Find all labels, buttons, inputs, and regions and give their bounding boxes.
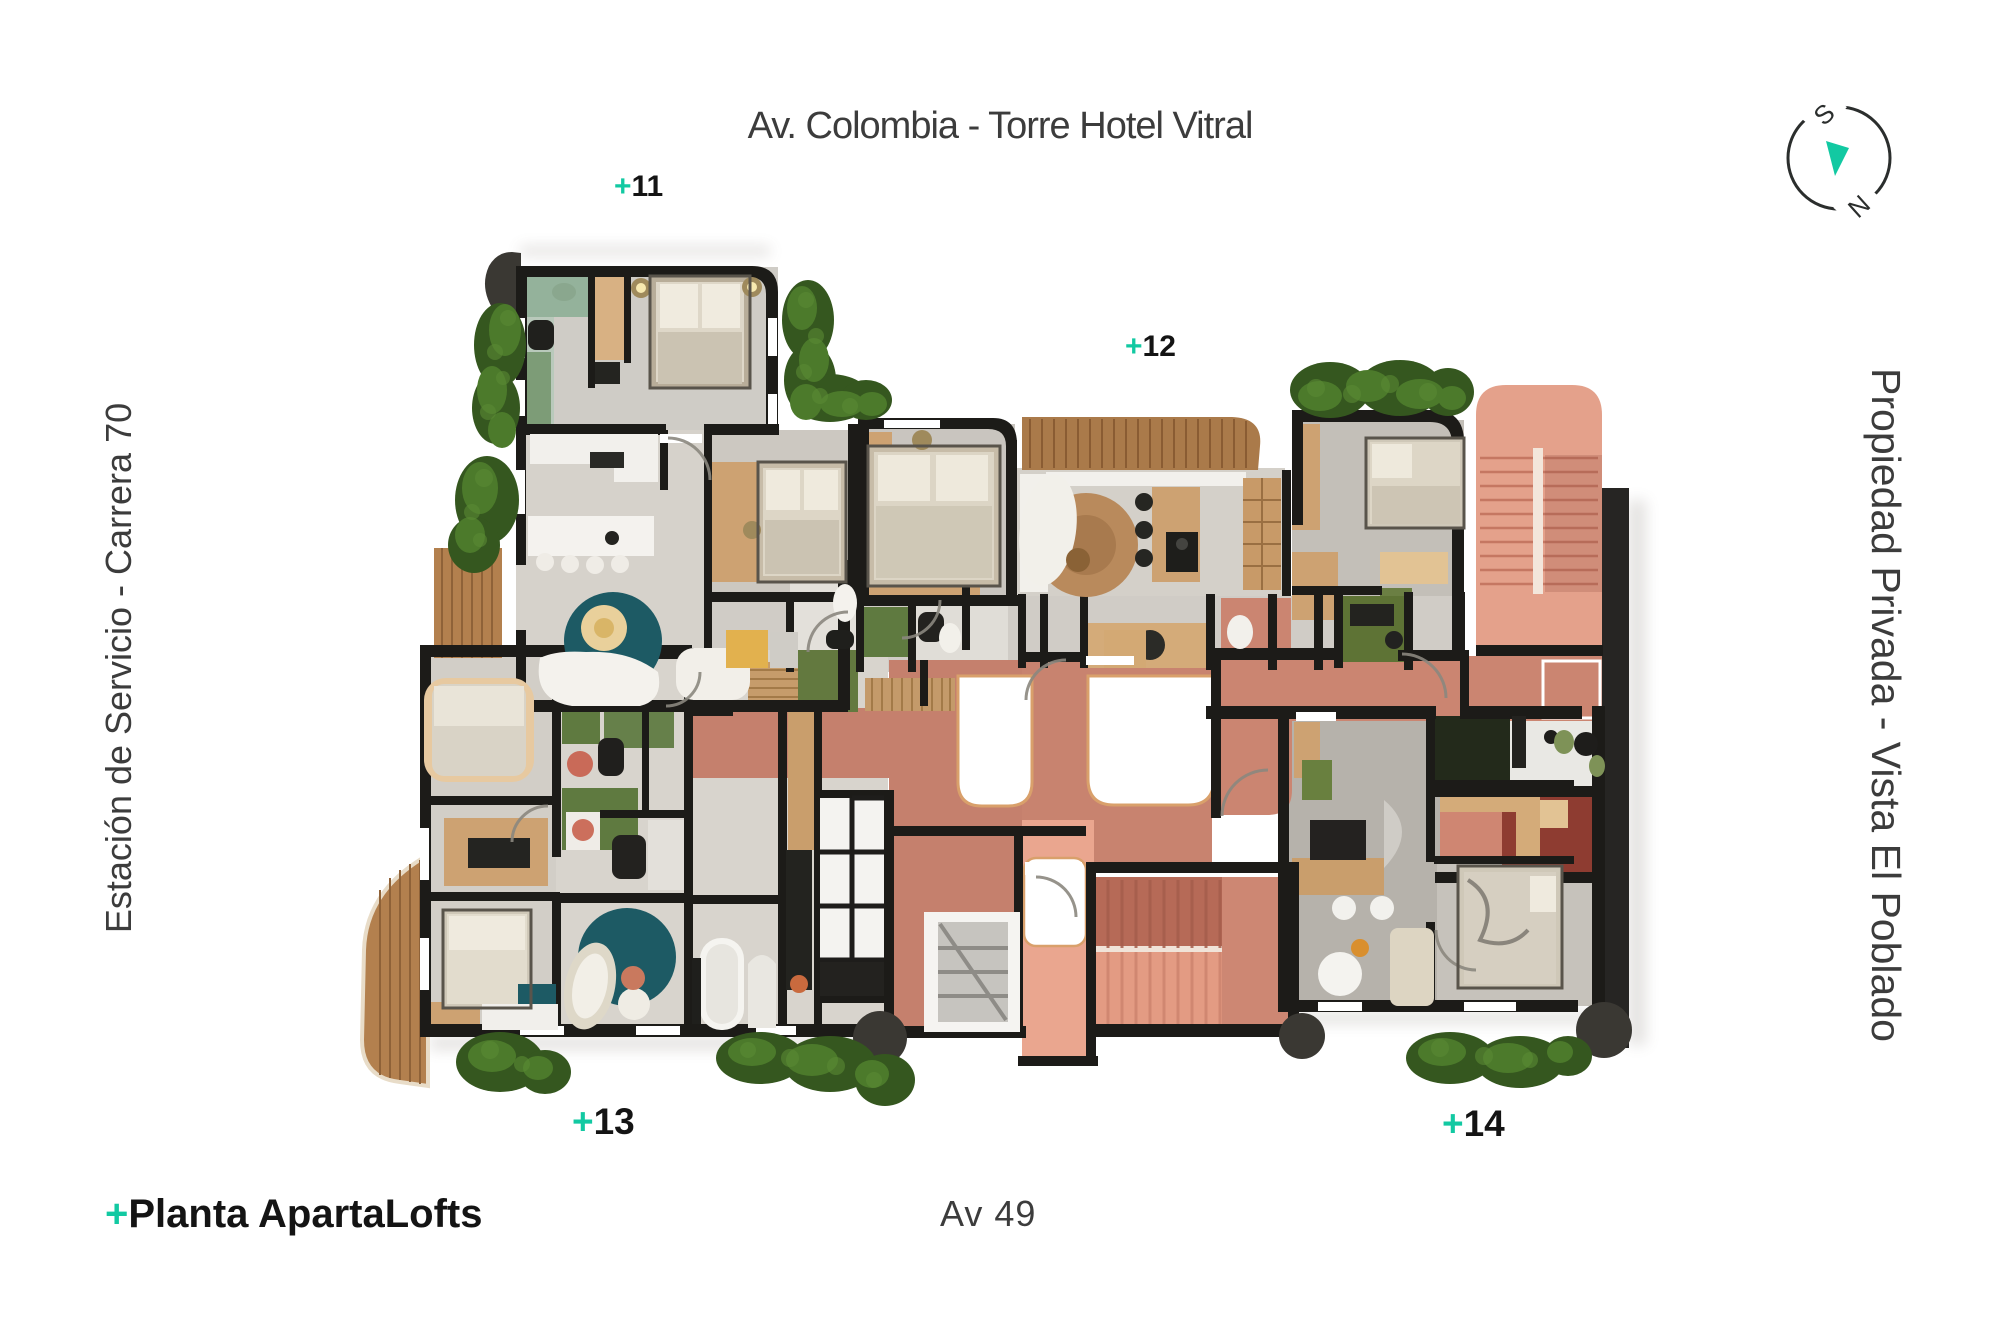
svg-text:+14: +14 [1442, 1103, 1505, 1144]
svg-text:Av. Colombia - Torre Hotel Vit: Av. Colombia - Torre Hotel Vitral [748, 105, 1253, 147]
svg-text:+11: +11 [614, 170, 663, 203]
svg-text:+Planta ApartaLofts: +Planta ApartaLofts [105, 1192, 482, 1236]
svg-text:Propiedad Privada - Vista El P: Propiedad Privada - Vista El Poblado [1863, 368, 1909, 1042]
svg-text:+13: +13 [572, 1101, 635, 1142]
svg-text:+12: +12 [1125, 330, 1176, 363]
svg-text:Av 49: Av 49 [940, 1193, 1036, 1234]
svg-text:Estación de Servicio - Carrera: Estación de Servicio - Carrera 70 [98, 403, 139, 933]
